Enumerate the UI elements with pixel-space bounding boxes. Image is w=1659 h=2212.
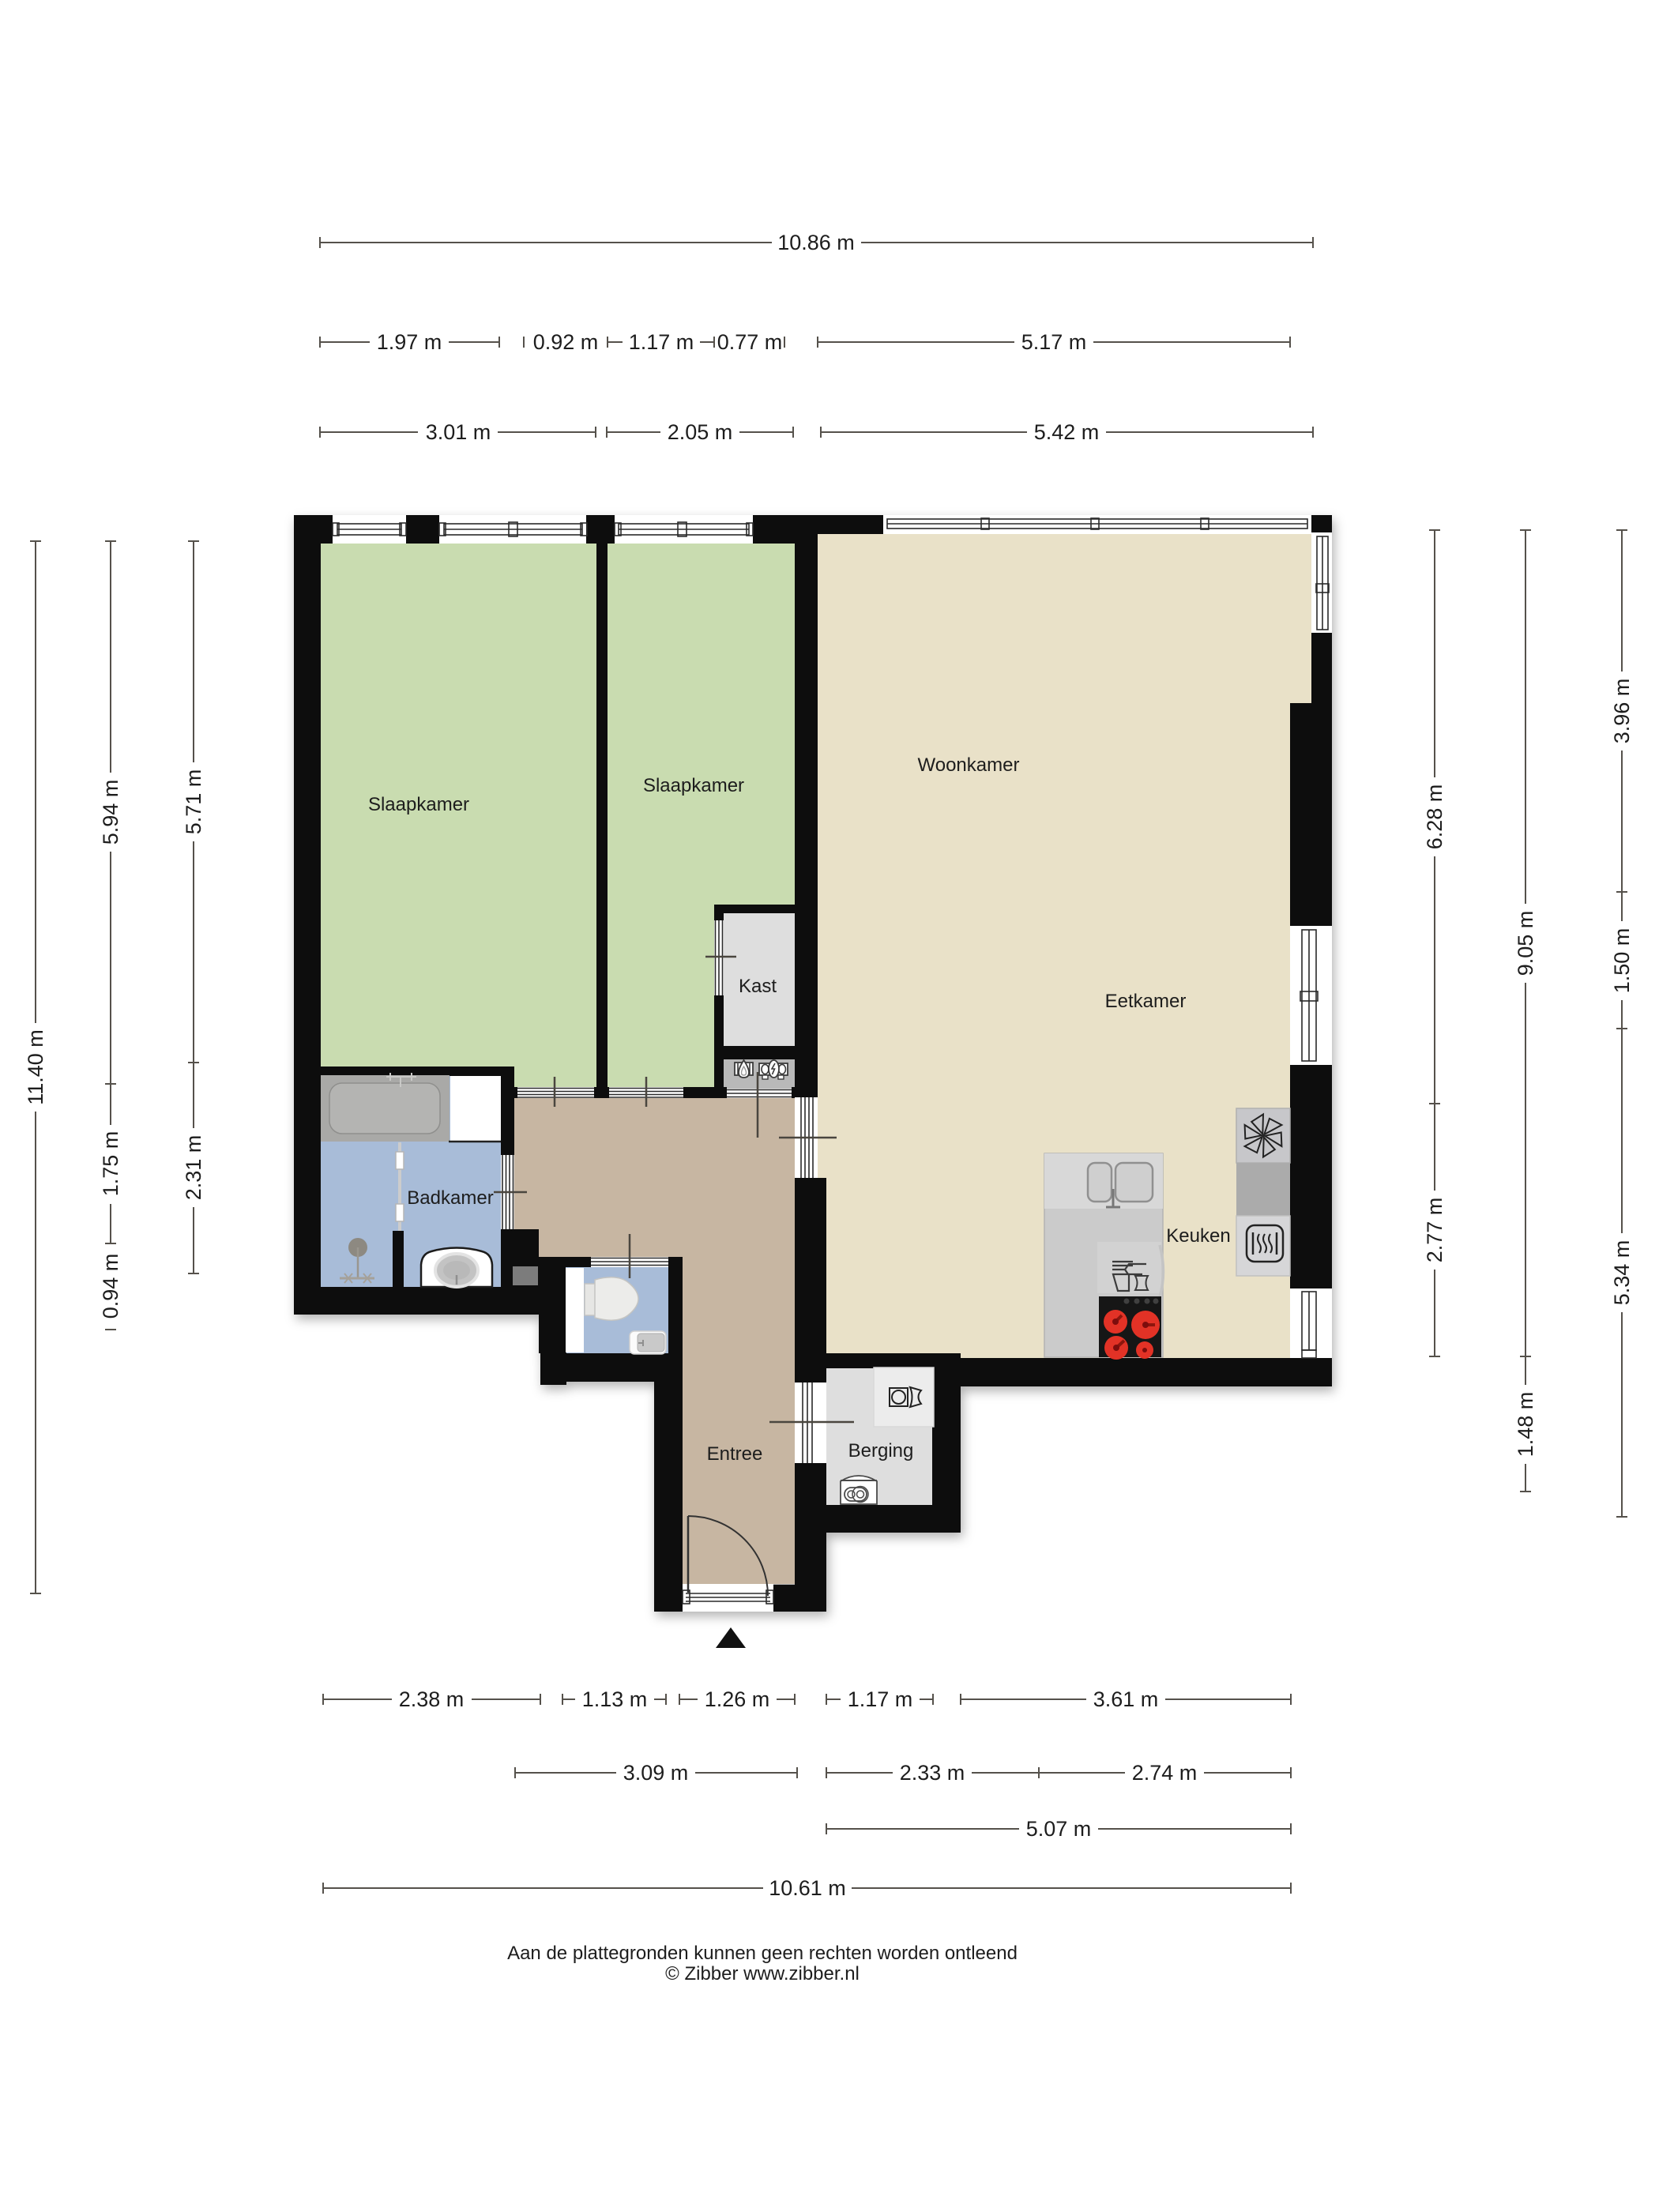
svg-text:2.05 m: 2.05 m bbox=[668, 420, 733, 444]
svg-text:Entree: Entree bbox=[707, 1443, 763, 1465]
svg-text:Woonkamer: Woonkamer bbox=[918, 754, 1020, 776]
svg-text:2.74 m: 2.74 m bbox=[1132, 1761, 1198, 1785]
svg-text:3.96 m: 3.96 m bbox=[1610, 679, 1634, 744]
svg-text:1.97 m: 1.97 m bbox=[377, 330, 442, 354]
svg-text:1.17 m: 1.17 m bbox=[848, 1687, 913, 1711]
svg-text:1.50 m: 1.50 m bbox=[1610, 928, 1634, 994]
svg-text:9.05 m: 9.05 m bbox=[1514, 911, 1537, 976]
svg-text:1.26 m: 1.26 m bbox=[705, 1687, 770, 1711]
svg-text:11.40 m: 11.40 m bbox=[24, 1029, 47, 1105]
svg-text:5.17 m: 5.17 m bbox=[1021, 330, 1087, 354]
svg-text:Slaapkamer: Slaapkamer bbox=[643, 775, 744, 796]
svg-text:Berging: Berging bbox=[848, 1440, 914, 1461]
svg-text:5.42 m: 5.42 m bbox=[1034, 420, 1100, 444]
svg-text:2.38 m: 2.38 m bbox=[399, 1687, 465, 1711]
svg-text:3.09 m: 3.09 m bbox=[623, 1761, 689, 1785]
svg-text:3.61 m: 3.61 m bbox=[1093, 1687, 1159, 1711]
svg-text:5.07 m: 5.07 m bbox=[1026, 1817, 1092, 1841]
svg-text:1.17 m: 1.17 m bbox=[629, 330, 694, 354]
svg-text:10.61 m: 10.61 m bbox=[769, 1876, 846, 1900]
svg-text:© Zibber www.zibber.nl: © Zibber www.zibber.nl bbox=[665, 1963, 860, 1984]
svg-text:0.92 m: 0.92 m bbox=[533, 330, 599, 354]
svg-text:5.34 m: 5.34 m bbox=[1610, 1240, 1634, 1306]
svg-text:0.94 m: 0.94 m bbox=[99, 1254, 122, 1319]
svg-text:Badkamer: Badkamer bbox=[407, 1187, 493, 1209]
svg-text:0.77 m: 0.77 m bbox=[717, 330, 783, 354]
svg-text:Eetkamer: Eetkamer bbox=[1105, 991, 1187, 1012]
svg-text:1.48 m: 1.48 m bbox=[1514, 1392, 1537, 1458]
svg-text:Keuken: Keuken bbox=[1166, 1225, 1230, 1247]
svg-text:10.86 m: 10.86 m bbox=[777, 231, 855, 254]
svg-text:2.77 m: 2.77 m bbox=[1423, 1198, 1446, 1263]
svg-text:1.75 m: 1.75 m bbox=[99, 1131, 122, 1197]
svg-text:5.71 m: 5.71 m bbox=[182, 769, 205, 835]
svg-text:Kast: Kast bbox=[739, 976, 777, 997]
svg-text:3.01 m: 3.01 m bbox=[426, 420, 491, 444]
svg-text:Slaapkamer: Slaapkamer bbox=[368, 794, 469, 815]
svg-text:1.13 m: 1.13 m bbox=[582, 1687, 648, 1711]
svg-text:6.28 m: 6.28 m bbox=[1423, 784, 1446, 850]
svg-text:2.31 m: 2.31 m bbox=[182, 1135, 205, 1201]
svg-text:5.94 m: 5.94 m bbox=[99, 780, 122, 845]
svg-text:Aan de plattegronden kunnen ge: Aan de plattegronden kunnen geen rechten… bbox=[507, 1943, 1018, 1964]
svg-text:2.33 m: 2.33 m bbox=[900, 1761, 965, 1785]
